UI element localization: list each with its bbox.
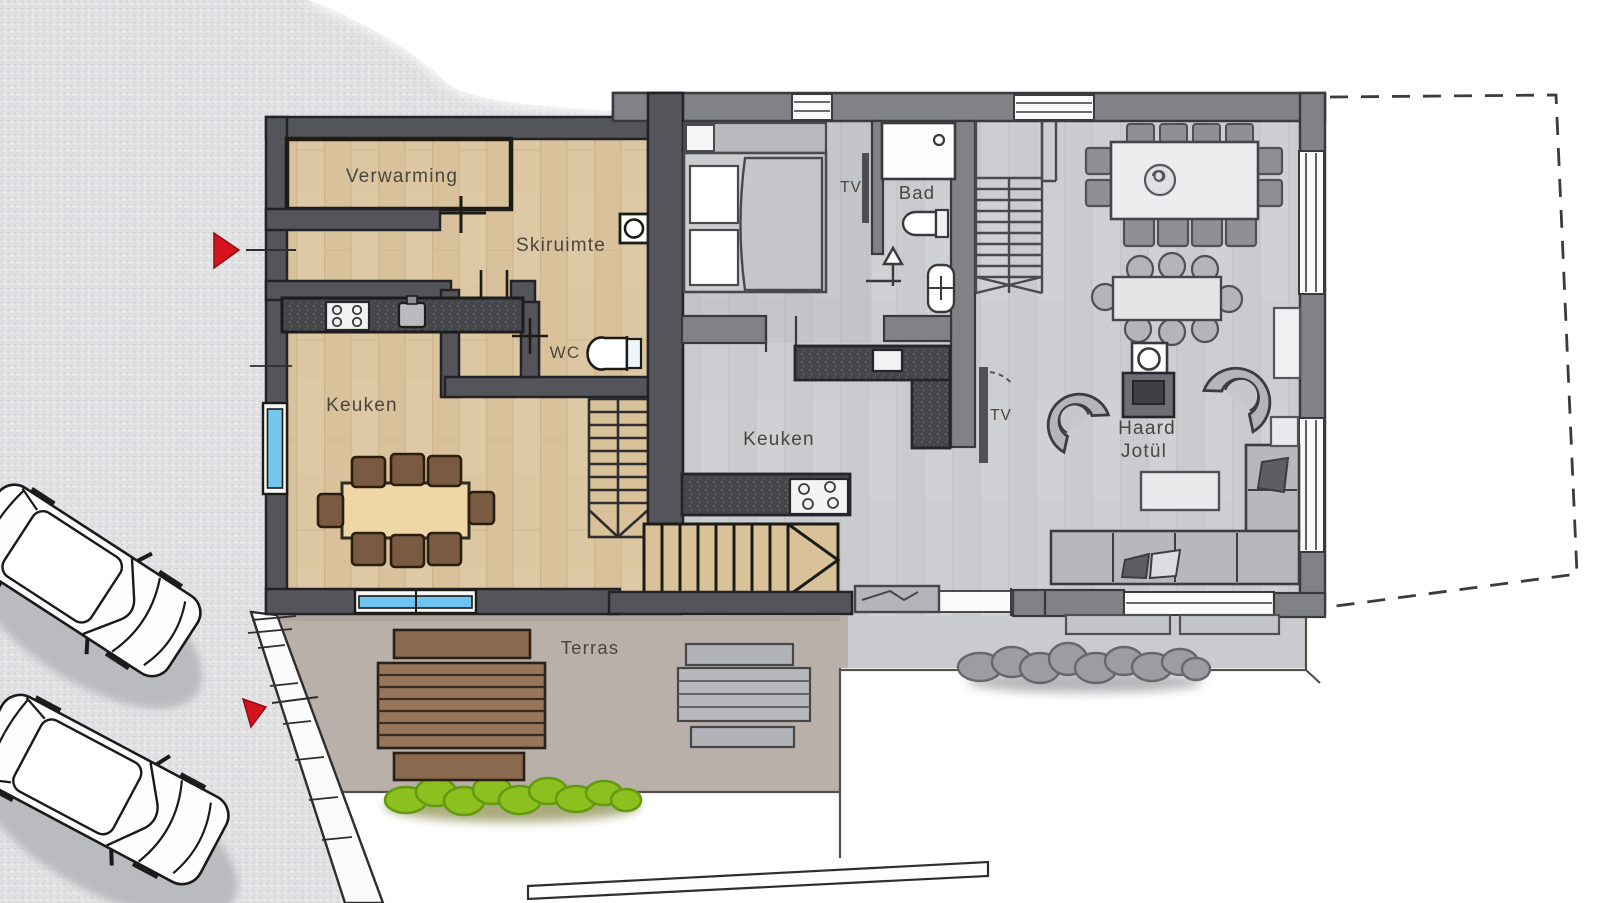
svg-text:TV: TV	[990, 407, 1012, 424]
svg-text:TV: TV	[840, 179, 862, 196]
svg-text:Bad: Bad	[899, 182, 936, 203]
svg-text:Jotül: Jotül	[1121, 441, 1167, 462]
svg-text:WC: WC	[550, 343, 581, 362]
svg-text:Verwarming: Verwarming	[346, 166, 458, 187]
svg-text:Haard: Haard	[1118, 418, 1176, 439]
svg-text:Keuken: Keuken	[743, 429, 815, 450]
svg-text:Terras: Terras	[561, 637, 620, 658]
svg-text:Keuken: Keuken	[326, 395, 398, 416]
svg-text:Skiruimte: Skiruimte	[516, 235, 606, 256]
